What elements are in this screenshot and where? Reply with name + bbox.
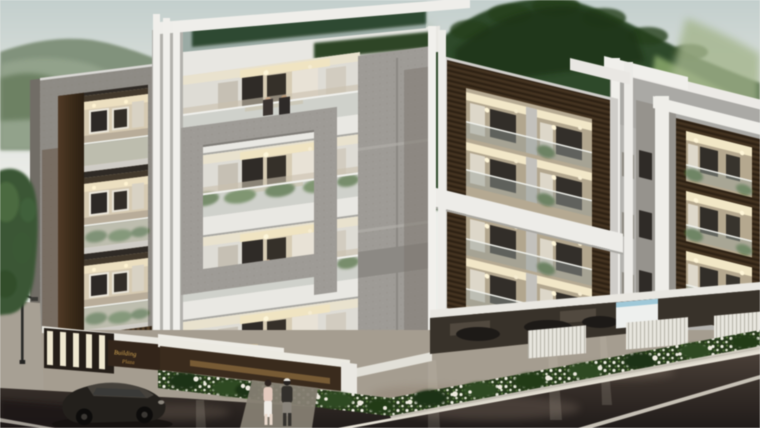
svg-text:Plaza: Plaza bbox=[121, 359, 135, 366]
